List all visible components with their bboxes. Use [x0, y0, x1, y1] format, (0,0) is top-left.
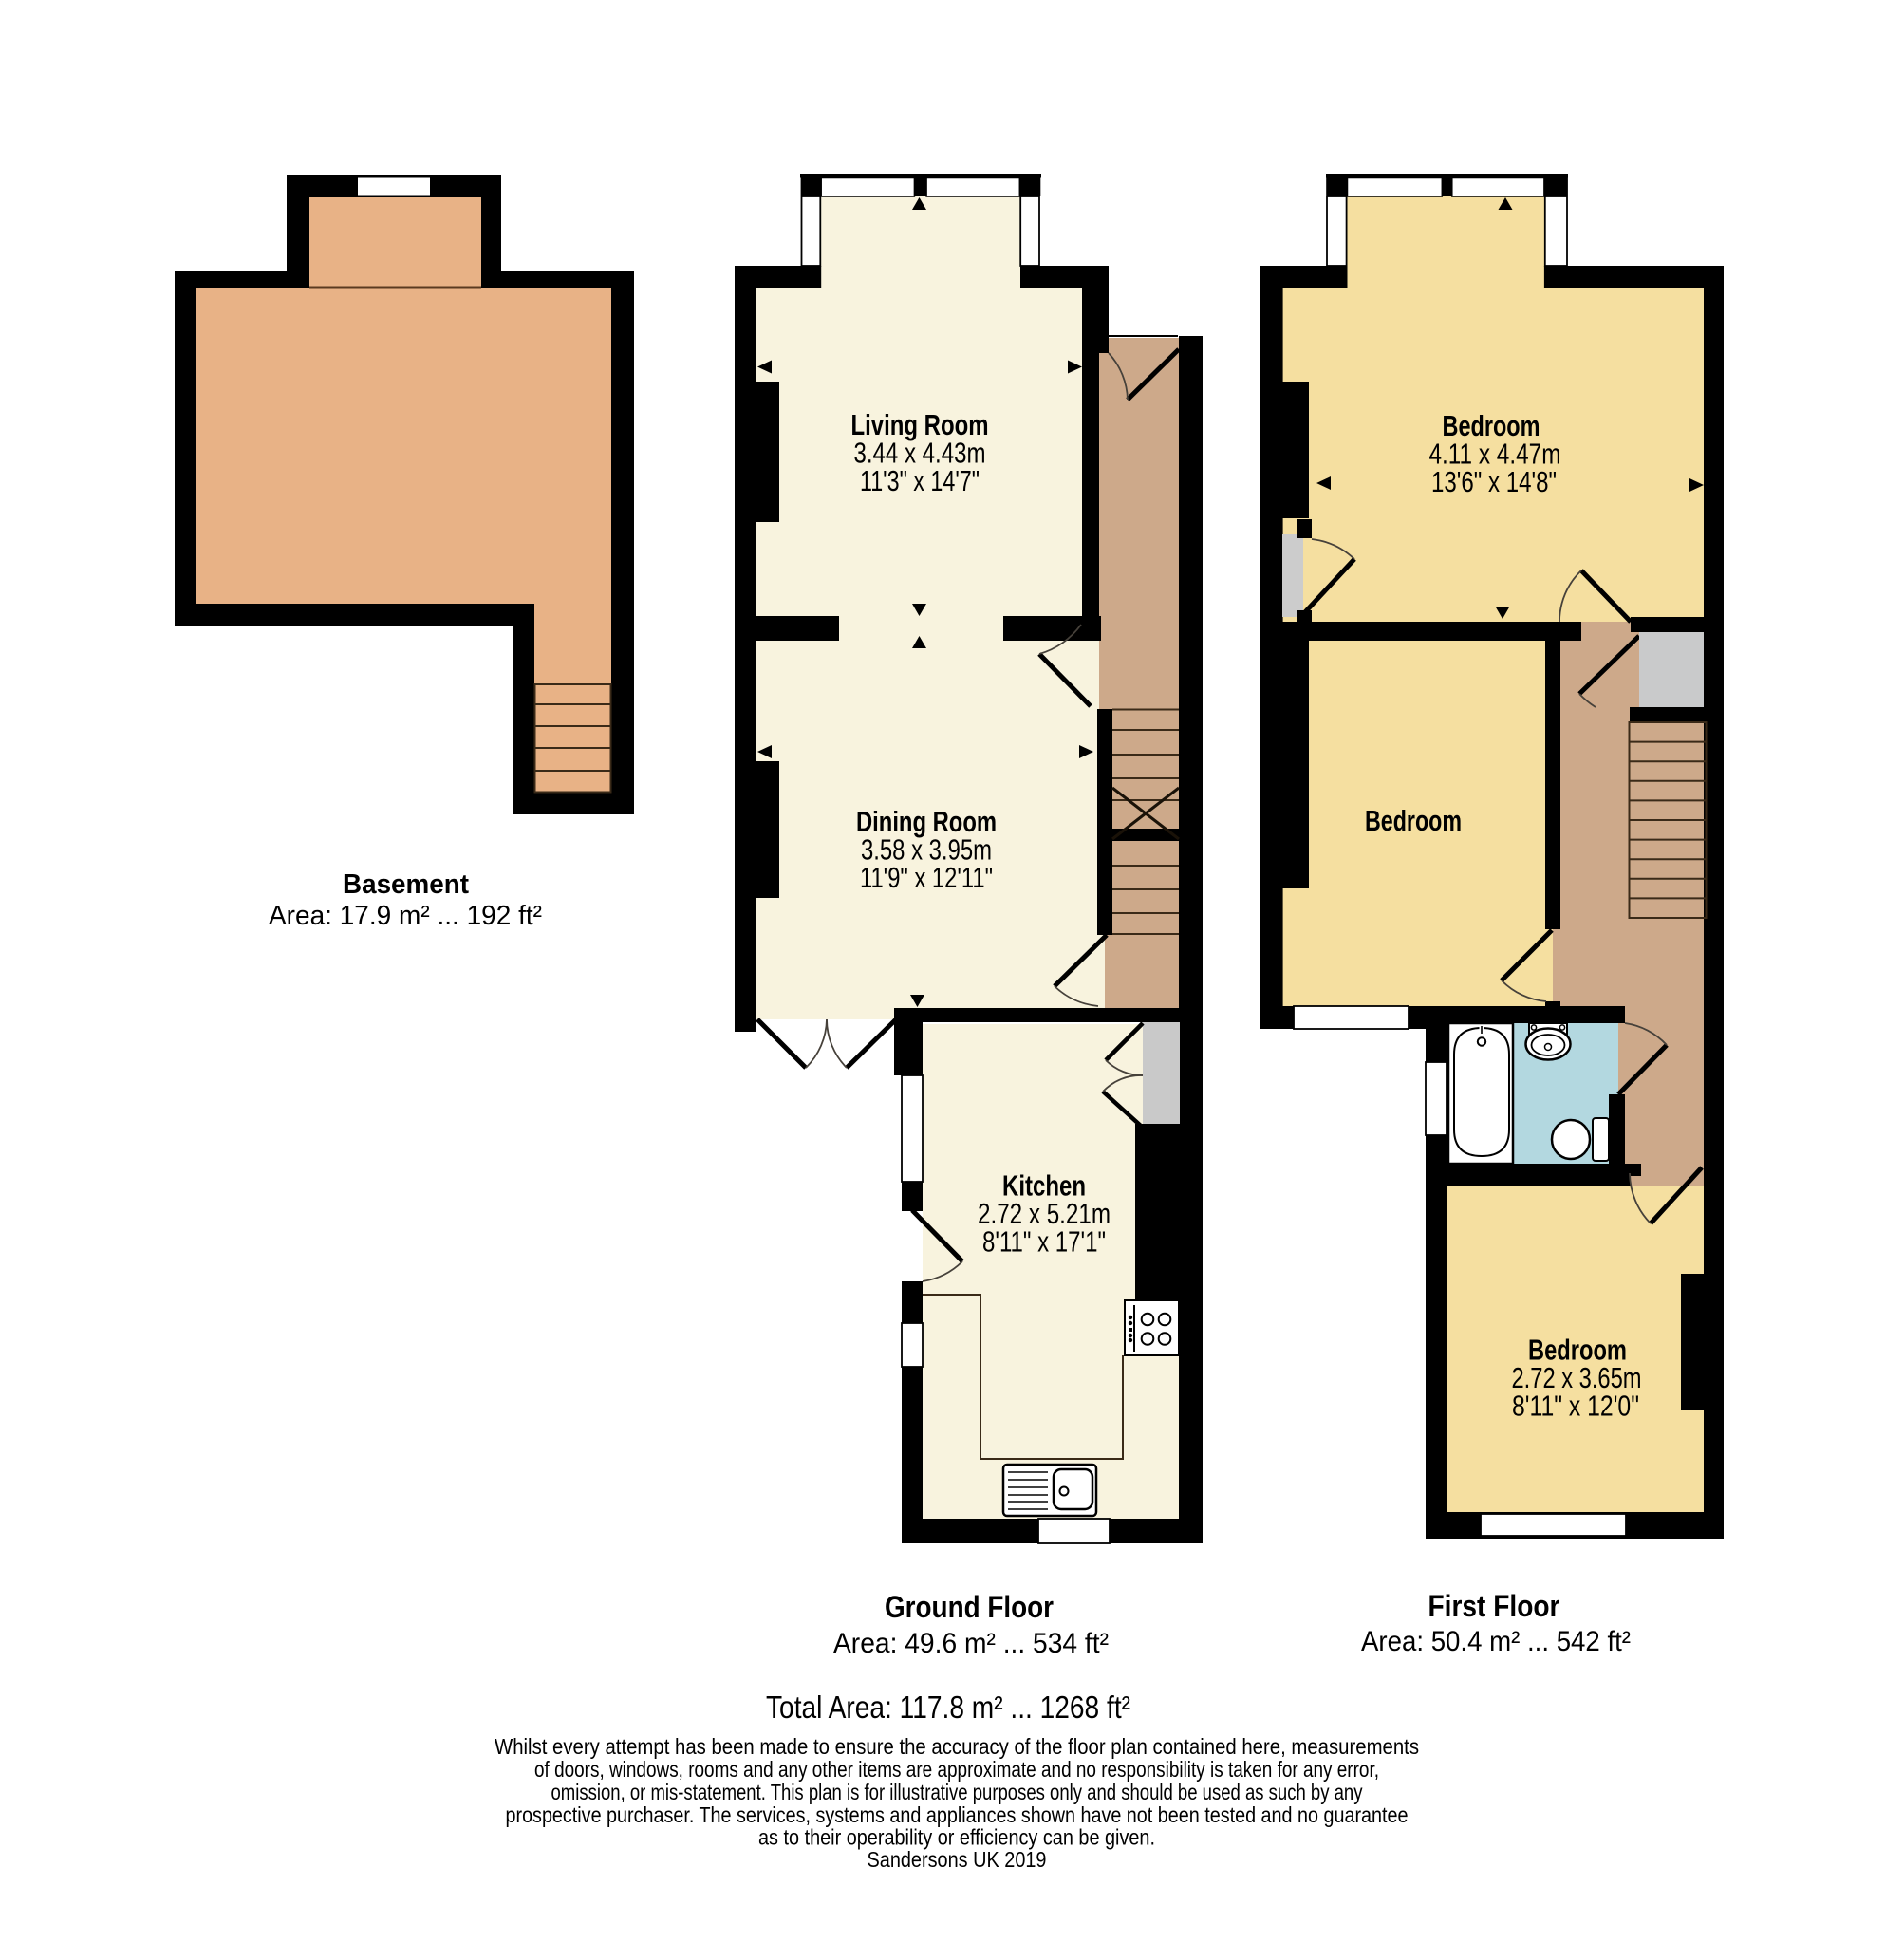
- svg-text:Total Area: 117.8 m² ... 1268: Total Area: 117.8 m² ... 1268 ft²: [766, 1690, 1130, 1725]
- svg-text:8'11" x 12'0": 8'11" x 12'0": [1512, 1390, 1639, 1423]
- svg-text:omission, or mis-statement. Th: omission, or mis-statement. This plan is…: [551, 1780, 1363, 1804]
- svg-text:Area: 17.9 m² ... 192 ft²: Area: 17.9 m² ... 192 ft²: [269, 901, 542, 931]
- svg-text:Basement: Basement: [343, 869, 469, 900]
- svg-text:Area: 49.6 m² ... 534 ft²: Area: 49.6 m² ... 534 ft²: [833, 1628, 1109, 1659]
- svg-text:Sandersons UK 2019: Sandersons UK 2019: [868, 1847, 1047, 1872]
- svg-text:Area: 50.4 m² ... 542 ft²: Area: 50.4 m² ... 542 ft²: [1361, 1626, 1631, 1657]
- svg-text:of doors, windows, rooms and a: of doors, windows, rooms and any other i…: [534, 1757, 1379, 1782]
- svg-text:13'6" x 14'8": 13'6" x 14'8": [1431, 465, 1557, 498]
- svg-text:Ground Floor: Ground Floor: [885, 1590, 1054, 1624]
- svg-text:First Floor: First Floor: [1428, 1589, 1560, 1623]
- svg-text:Whilst every attempt has been: Whilst every attempt has been made to en…: [495, 1734, 1419, 1759]
- svg-text:prospective purchaser. The ser: prospective purchaser. The services, sys…: [506, 1802, 1409, 1827]
- svg-text:as to their operability or eff: as to their operability or efficiency ca…: [758, 1825, 1155, 1850]
- svg-text:11'9" x 12'11": 11'9" x 12'11": [860, 861, 993, 894]
- svg-text:8'11" x 17'1": 8'11" x 17'1": [982, 1225, 1106, 1259]
- svg-text:11'3" x 14'7": 11'3" x 14'7": [860, 464, 980, 497]
- svg-text:Bedroom: Bedroom: [1365, 804, 1462, 837]
